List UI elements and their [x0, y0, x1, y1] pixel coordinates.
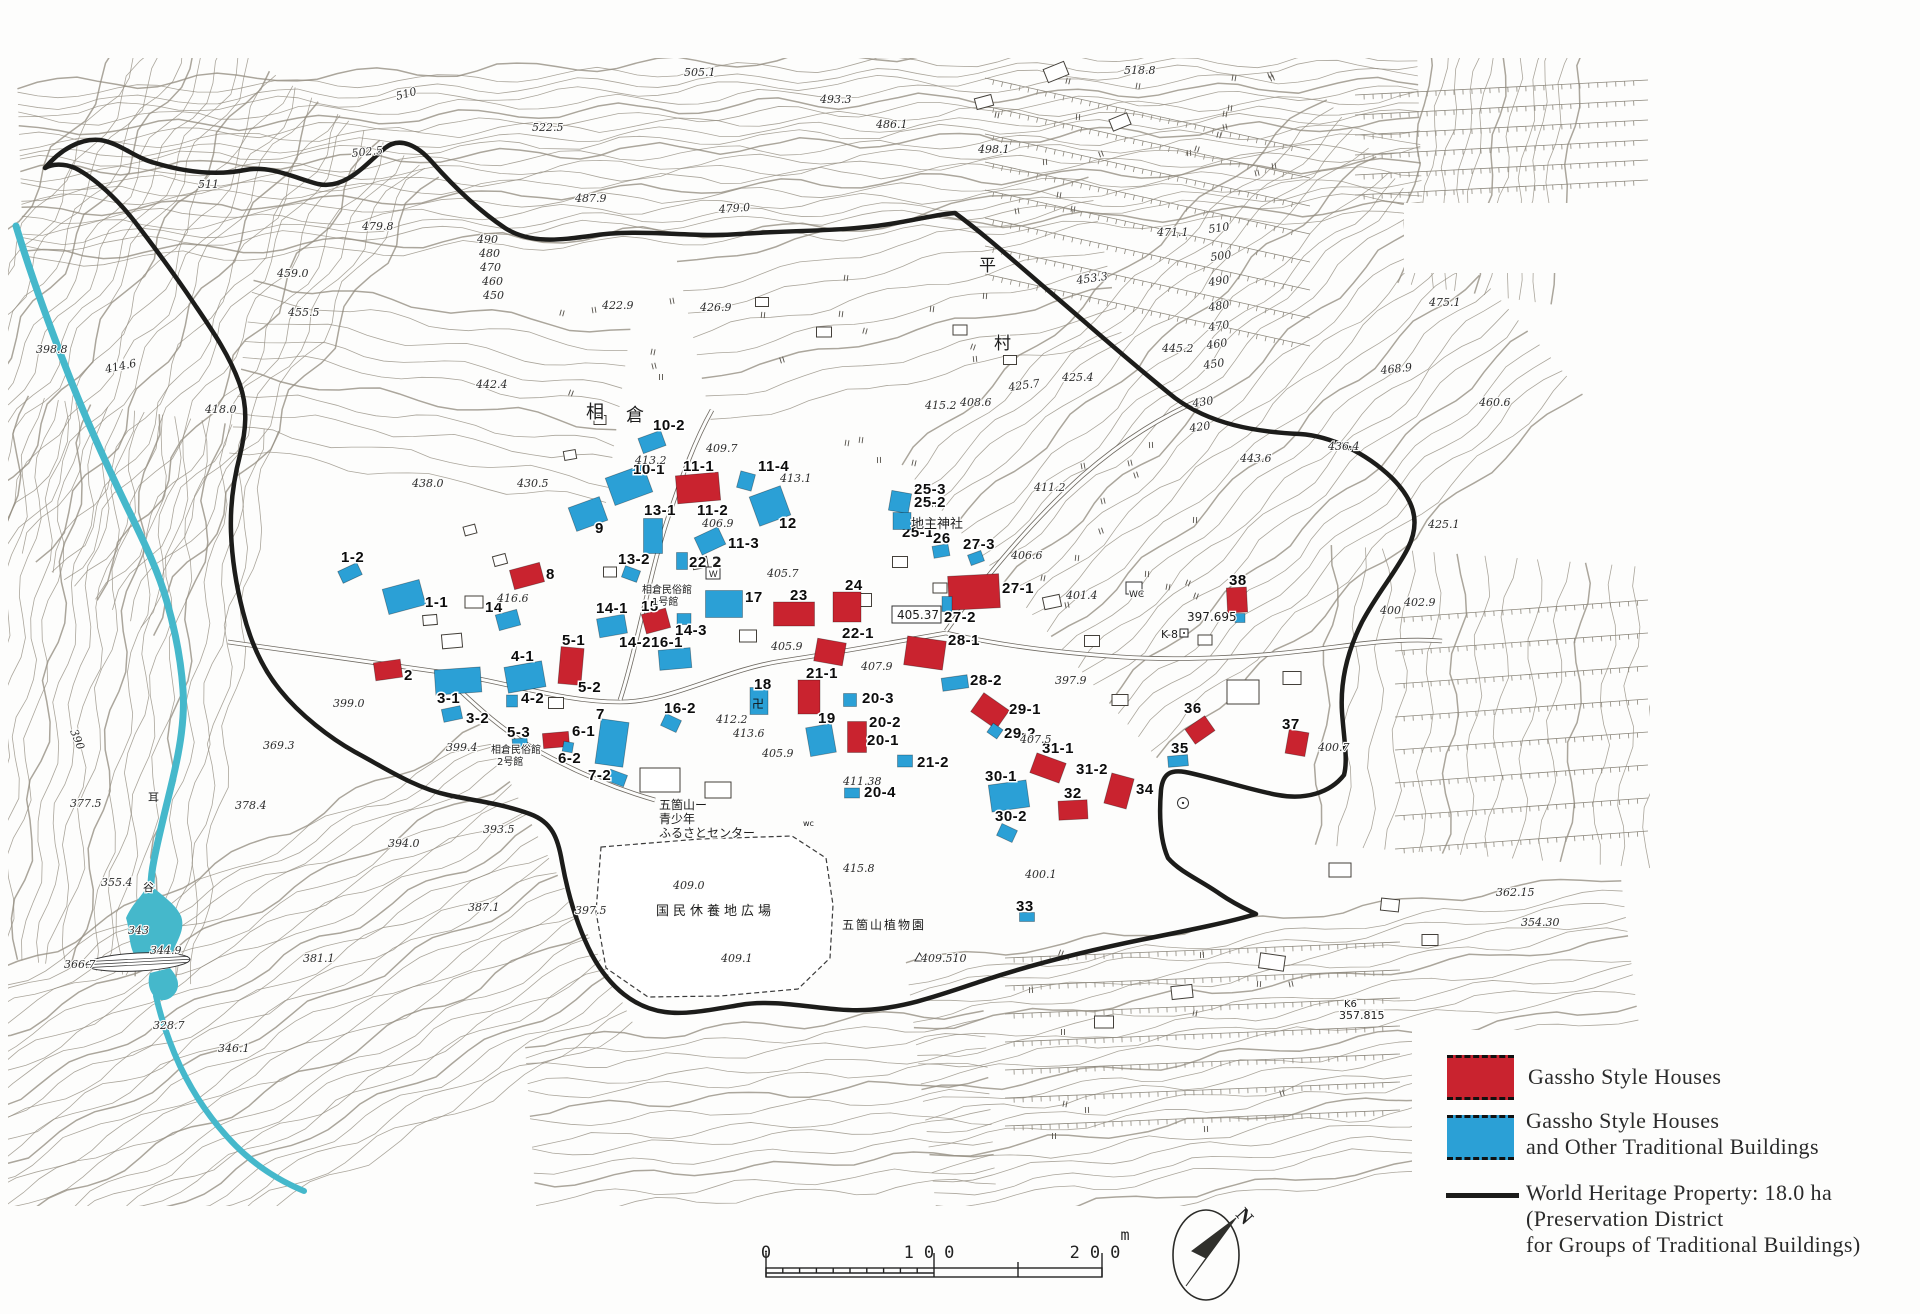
- elevation-label: 378.4: [235, 799, 267, 812]
- elevation-label: 405.9: [770, 640, 803, 653]
- building-label-10-2: 10-2: [653, 417, 685, 434]
- building-label-1-2: 1-2: [341, 549, 364, 566]
- map-text-label: 五箇山ー: [659, 798, 707, 812]
- building-label-23: 23: [790, 587, 808, 604]
- elevation-label: 522.5: [532, 121, 564, 134]
- building-17: [706, 591, 743, 618]
- map-text-label: 平: [979, 256, 996, 276]
- elevation-label: 459.0: [276, 267, 309, 280]
- building-label-36: 36: [1184, 700, 1202, 717]
- elevation-label: 445.2: [1161, 342, 1194, 355]
- elevation-label: 479.0: [717, 201, 750, 216]
- building-label-6-2: 6-2: [558, 750, 581, 767]
- building-23: [774, 602, 815, 626]
- elevation-label: 346.1: [218, 1042, 250, 1055]
- building-label-27-1: 27-1: [1002, 580, 1034, 597]
- elevation-label: 406.6: [1010, 549, 1043, 562]
- elevation-label: 366.7: [64, 958, 96, 971]
- elevation-label: 425.1: [1427, 518, 1460, 531]
- elevation-label: 505.1: [684, 66, 716, 79]
- map-text-label: 1号館: [652, 595, 678, 608]
- legend-label-gassho-other: Gassho Style Houses and Other Traditiona…: [1526, 1108, 1819, 1160]
- building-label-28-2: 28-2: [970, 672, 1002, 689]
- building-label-13-1: 13-1: [644, 502, 676, 519]
- building-label-2: 2: [404, 667, 413, 684]
- elevation-label: 407.9: [860, 660, 893, 673]
- building-label-16-1: 16-1: [651, 634, 683, 651]
- building-label-27-2: 27-2: [944, 609, 976, 626]
- map-text-label: WC: [1129, 590, 1144, 600]
- scale-unit: m: [1120, 1226, 1129, 1244]
- elevation-label: 470: [479, 261, 501, 274]
- elevation-label: 443.6: [1239, 452, 1272, 465]
- map-text-label: 2号館: [497, 755, 523, 768]
- elevation-label: 413.1: [779, 472, 812, 485]
- building-label-14-1: 14-1: [596, 600, 628, 617]
- elevation-label: 416.6: [496, 592, 529, 605]
- building-20-4: [845, 788, 860, 798]
- elevation-label: 387.1: [468, 901, 500, 914]
- elevation-label: 518.8: [1124, 64, 1156, 77]
- elevation-label: 407.5: [1019, 733, 1052, 746]
- elevation-label: 487.9: [574, 192, 607, 205]
- elevation-label: 475.1: [1428, 296, 1461, 309]
- map-text-label: 谷: [143, 881, 154, 894]
- elevation-label: 413.2: [634, 454, 667, 467]
- legend-swatch-gassho: [1447, 1055, 1514, 1100]
- map-text-label: 397.695: [1187, 610, 1237, 624]
- map-text-label: 地主神社: [911, 516, 963, 532]
- building-21-2: [898, 755, 913, 767]
- building-25b: [893, 513, 911, 530]
- legend-swatch-boundary: [1446, 1193, 1519, 1198]
- elevation-label: 328.7: [153, 1019, 185, 1032]
- building-37: [1285, 729, 1309, 756]
- map-text-label: ふるさとセンター: [659, 826, 755, 840]
- elevation-label: 400.7: [1317, 741, 1350, 754]
- elevation-label: 480: [478, 247, 500, 260]
- building-label-38: 38: [1229, 572, 1247, 589]
- building-16-1: [658, 648, 692, 671]
- map-text-label: 相倉民俗館: [642, 583, 692, 596]
- map-text-label: 倉: [626, 405, 644, 426]
- elevation-label: 397.9: [1055, 674, 1087, 687]
- elevation-label: 460.6: [1478, 396, 1511, 409]
- building-label-11-3: 11-3: [728, 535, 759, 552]
- building-label-3-2: 3-2: [466, 710, 489, 727]
- building-label-34: 34: [1136, 781, 1154, 798]
- elevation-label: 405.9: [761, 747, 794, 760]
- building-label-20-3: 20-3: [862, 690, 894, 707]
- elevation-label: 398.8: [36, 343, 68, 356]
- elevation-label: 393.5: [483, 823, 515, 836]
- elevation-label: 450: [482, 289, 504, 302]
- map-text-label: 五箇山植物園: [842, 917, 926, 932]
- elevation-label: 498.1: [977, 143, 1010, 156]
- map-text-label: 相: [586, 402, 604, 423]
- elevation-label: 425.4: [1061, 371, 1094, 384]
- legend-label-boundary: World Heritage Property: 18.0 ha (Preser…: [1526, 1180, 1861, 1258]
- elevation-label: 415.8: [842, 862, 875, 875]
- building-22: [677, 553, 688, 570]
- building-label-32: 32: [1064, 785, 1082, 802]
- building-label-27-3: 27-3: [963, 536, 995, 553]
- elevation-label: 369.3: [263, 739, 295, 752]
- elevation-label: 400: [1379, 604, 1401, 617]
- building-label-17: 17: [745, 589, 763, 606]
- building-2: [373, 659, 402, 681]
- elevation-label: 460: [481, 275, 503, 288]
- building-7: [595, 719, 629, 767]
- elevation-label: 436.4: [1327, 440, 1360, 453]
- building-label-9: 9: [595, 520, 604, 537]
- elevation-label: 406.9: [701, 517, 734, 530]
- elevation-label: 442.4: [475, 378, 508, 391]
- building-label-22: 22: [689, 554, 707, 571]
- map-text-label: 国民休養地広場: [656, 903, 775, 919]
- legend-swatch-gassho-other: [1447, 1115, 1514, 1160]
- building-label-5-2: 5-2: [578, 679, 601, 696]
- building-13-1: [644, 519, 663, 554]
- building-label-29-1: 29-1: [1009, 701, 1041, 718]
- elevation-label: 479.8: [361, 220, 394, 233]
- building-label-5-1: 5-1: [562, 632, 585, 649]
- elevation-label: 426.9: [699, 301, 732, 314]
- map-text-label: 357.815: [1339, 1009, 1385, 1022]
- building-label-16-2: 16-2: [664, 700, 696, 717]
- building-27-1: [948, 574, 1001, 611]
- building-25a: [888, 490, 911, 513]
- building-label-4-2: 4-2: [521, 690, 544, 707]
- elevation-label: 354.30: [1521, 916, 1560, 929]
- building-label-20-2: 20-2: [869, 714, 901, 731]
- elevation-label: 409.1: [720, 952, 753, 965]
- building-label-4-1: 4-1: [511, 648, 534, 665]
- building-label-18: 18: [754, 676, 772, 693]
- building-21-1: [798, 680, 820, 714]
- elevation-label: 408.6: [959, 396, 992, 409]
- elevation-label: 411.38: [842, 775, 882, 788]
- building-label-13-2: 13-2: [618, 551, 650, 568]
- building-label-5-3: 5-3: [507, 724, 530, 741]
- elevation-label: 486.1: [875, 118, 908, 131]
- building-label-3-1: 3-1: [437, 690, 460, 707]
- building-label-6-1: 6-1: [572, 723, 595, 740]
- elevation-label: 399.0: [333, 697, 365, 710]
- map-text-label: 青少年: [659, 812, 695, 826]
- building-4-2: [507, 695, 518, 707]
- building-label-21-2: 21-2: [917, 754, 949, 771]
- building-label-8: 8: [546, 566, 555, 583]
- building-28-1: [904, 636, 947, 670]
- elevation-label: 394.0: [388, 837, 420, 850]
- building-label-20-1: 20-1: [867, 732, 899, 749]
- building-label-26: 26: [933, 530, 951, 547]
- map-text-label: K-8: [1161, 628, 1178, 641]
- elevation-label: 405.7: [766, 567, 799, 580]
- elevation-label: 413.6: [732, 727, 765, 740]
- preservation-map-sheet: 1-21-1823-13-24-14-25-15-25-36-16-277-29…: [0, 0, 1920, 1314]
- elevation-label: 422.9: [601, 299, 634, 312]
- elevation-label: 400.1: [1024, 868, 1057, 881]
- elevation-label: 362.15: [1496, 886, 1535, 899]
- elevation-label: 397.5: [575, 904, 607, 917]
- building-label-25-2: 25-2: [914, 494, 946, 511]
- elevation-label: 511: [198, 178, 219, 191]
- building-22-1: [814, 638, 847, 666]
- map-text-label: 村: [994, 334, 1011, 354]
- elevation-label: 409.0: [672, 879, 705, 892]
- elevation-label: 401.4: [1065, 589, 1098, 602]
- elevation-label: 343: [128, 924, 149, 937]
- building-label-19: 19: [818, 710, 836, 727]
- elevation-label: 430.5: [516, 477, 549, 490]
- elevation-label: 490: [476, 233, 498, 246]
- building-label-14-2: 14-2: [619, 634, 651, 651]
- building-label-37: 37: [1282, 716, 1300, 733]
- elevation-label: 409.7: [705, 442, 738, 455]
- elevation-label: 344.9: [150, 944, 182, 957]
- elevation-label: 493.3: [819, 93, 852, 106]
- building-20-1: [848, 722, 867, 753]
- map-text-label: 405.37: [897, 608, 939, 622]
- legend-label-gassho: Gassho Style Houses: [1528, 1064, 1721, 1090]
- elevation-label: 415.2: [924, 399, 957, 412]
- elevation-label: 412.2: [715, 713, 748, 726]
- temple-manji-icon: 卍: [752, 697, 764, 711]
- building-label-22-1: 22-1: [842, 625, 874, 642]
- scale-tick-200: 200: [1070, 1243, 1131, 1263]
- building-32: [1058, 800, 1088, 820]
- building-label-24: 24: [845, 577, 863, 594]
- building-label-7: 7: [596, 706, 605, 723]
- map-text-label: wc: [803, 819, 814, 828]
- building-label-30-2: 30-2: [995, 808, 1027, 825]
- building-19: [806, 723, 837, 756]
- building-label-7-2: 7-2: [588, 767, 611, 784]
- elevation-label: 377.5: [70, 797, 102, 810]
- building-label-33: 33: [1016, 898, 1034, 915]
- elevation-label: 409.510: [920, 952, 967, 965]
- building-label-11-1: 11-1: [683, 458, 714, 475]
- elevation-label: 402.9: [1403, 596, 1436, 609]
- elevation-label: 399.4: [446, 741, 478, 754]
- building-label-12: 12: [779, 515, 797, 532]
- building-label-1-1: 1-1: [425, 594, 448, 611]
- elevation-label: 438.0: [411, 477, 444, 490]
- map-text-label: 相倉民俗館: [491, 743, 541, 756]
- elevation-label: 355.4: [101, 876, 133, 889]
- building-20-3: [844, 694, 857, 707]
- building-label-28-1: 28-1: [948, 632, 980, 649]
- elevation-label: 418.0: [204, 403, 237, 416]
- building-label-31-2: 31-2: [1076, 761, 1108, 778]
- building-11-1: [675, 472, 720, 504]
- elevation-label: 471.1: [1156, 226, 1189, 239]
- elevation-label: 455.5: [287, 306, 320, 319]
- building-label-35: 35: [1171, 740, 1189, 757]
- elevation-label: 411.2: [1033, 481, 1066, 494]
- elevation-label: 381.1: [303, 952, 335, 965]
- building-label-30-1: 30-1: [985, 768, 1017, 785]
- building-label-21-1: 21-1: [806, 665, 838, 682]
- map-text-label: 2: [712, 555, 722, 571]
- building-24: [833, 592, 861, 622]
- map-text-label: 耳: [148, 791, 159, 804]
